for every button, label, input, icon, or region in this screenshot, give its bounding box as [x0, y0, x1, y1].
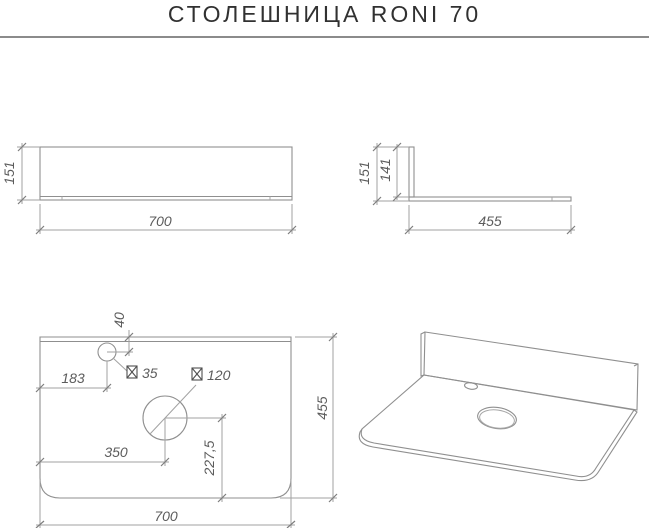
side-slab-outline — [409, 197, 571, 201]
diameter-icon — [127, 366, 137, 378]
front-view: 151 700 — [1, 143, 296, 234]
side-splash-outline — [409, 147, 414, 197]
top-width-label: 700 — [154, 508, 178, 524]
diameter-icon — [192, 368, 202, 380]
front-outline — [40, 147, 292, 200]
front-height-label: 151 — [1, 161, 17, 184]
side-total-height-label: 151 — [356, 161, 372, 184]
top-depth-label: 455 — [314, 396, 330, 420]
top-view: 40 183 35 120 — [36, 312, 337, 528]
leader-line — [150, 385, 196, 434]
technical-drawing-page: СТОЛЕШНИЦА RONI 70 151 700 — [0, 0, 649, 528]
faucet-left-offset-label: 183 — [61, 370, 85, 386]
persp-backsplash — [424, 332, 638, 410]
sink-diameter-label: 120 — [207, 367, 231, 383]
leader-line — [113, 358, 127, 371]
front-width-label: 700 — [148, 213, 172, 229]
sink-left-offset-label: 350 — [104, 444, 128, 460]
faucet-diameter-label: 35 — [142, 365, 158, 381]
perspective-view — [359, 332, 638, 481]
drawing-canvas: 151 700 151 141 — [0, 0, 649, 528]
sink-bottom-offset-label: 227,5 — [201, 440, 217, 476]
side-splash-height-label: 141 — [377, 158, 393, 181]
side-depth-label: 455 — [478, 213, 502, 229]
persp-sink-hole — [476, 405, 518, 431]
faucet-top-offset-label: 40 — [111, 312, 127, 328]
persp-backsplash-top-edge — [634, 364, 638, 366]
side-view: 151 141 455 — [356, 143, 575, 234]
persp-slab-top — [361, 375, 634, 477]
